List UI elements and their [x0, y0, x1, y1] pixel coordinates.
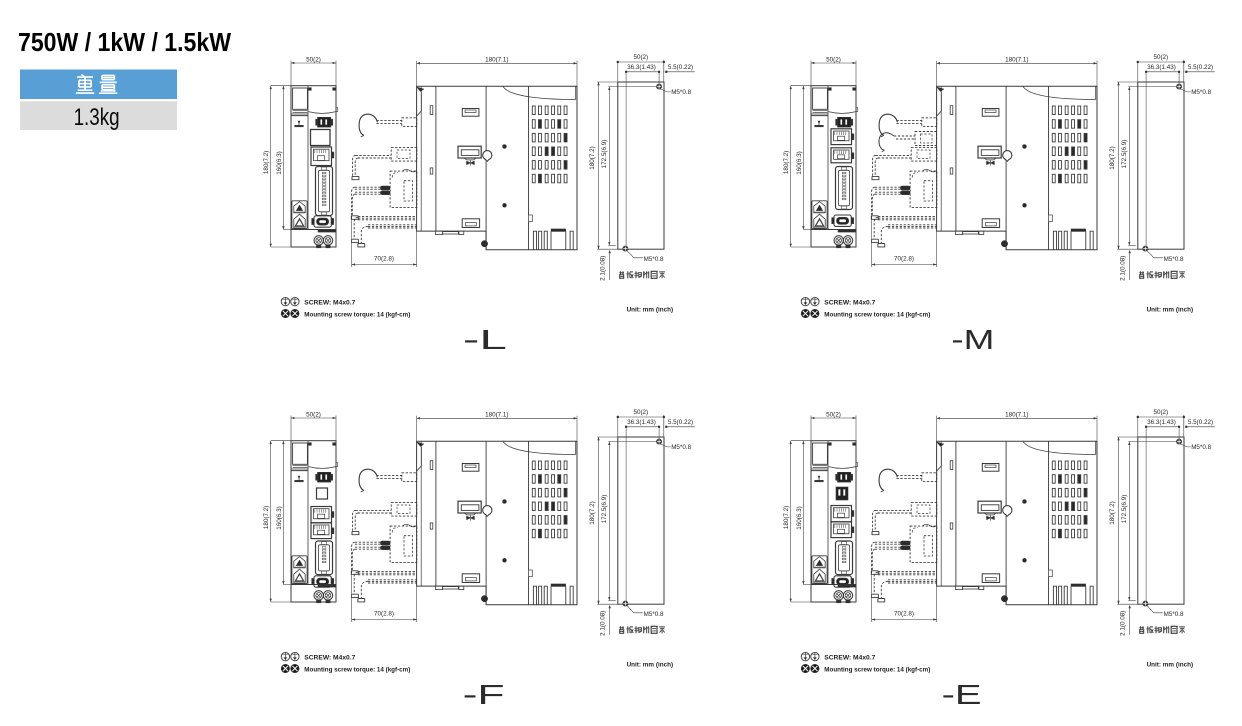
svg-text:-M: -M	[951, 324, 994, 355]
svg-text:750W / 1kW / 1.5kW: 750W / 1kW / 1.5kW	[18, 27, 231, 57]
svg-text:-L: -L	[463, 324, 507, 355]
svg-text:1.3kg: 1.3kg	[74, 104, 120, 131]
svg-text:-E: -E	[942, 679, 982, 710]
svg-text:-F: -F	[463, 679, 505, 710]
